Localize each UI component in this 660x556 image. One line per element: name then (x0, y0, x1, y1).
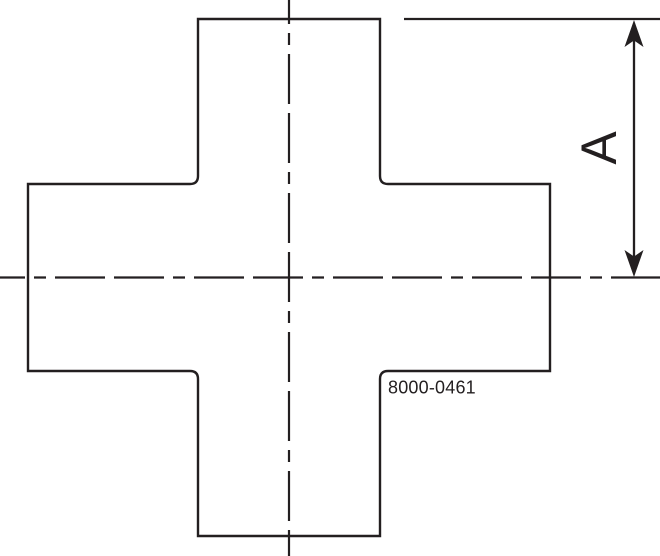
dimension-label: A (571, 131, 627, 165)
technical-drawing-canvas: A 8000-0461 (0, 0, 660, 556)
cross-fitting-drawing: A 8000-0461 (0, 0, 660, 556)
part-number-label: 8000-0461 (388, 378, 476, 398)
